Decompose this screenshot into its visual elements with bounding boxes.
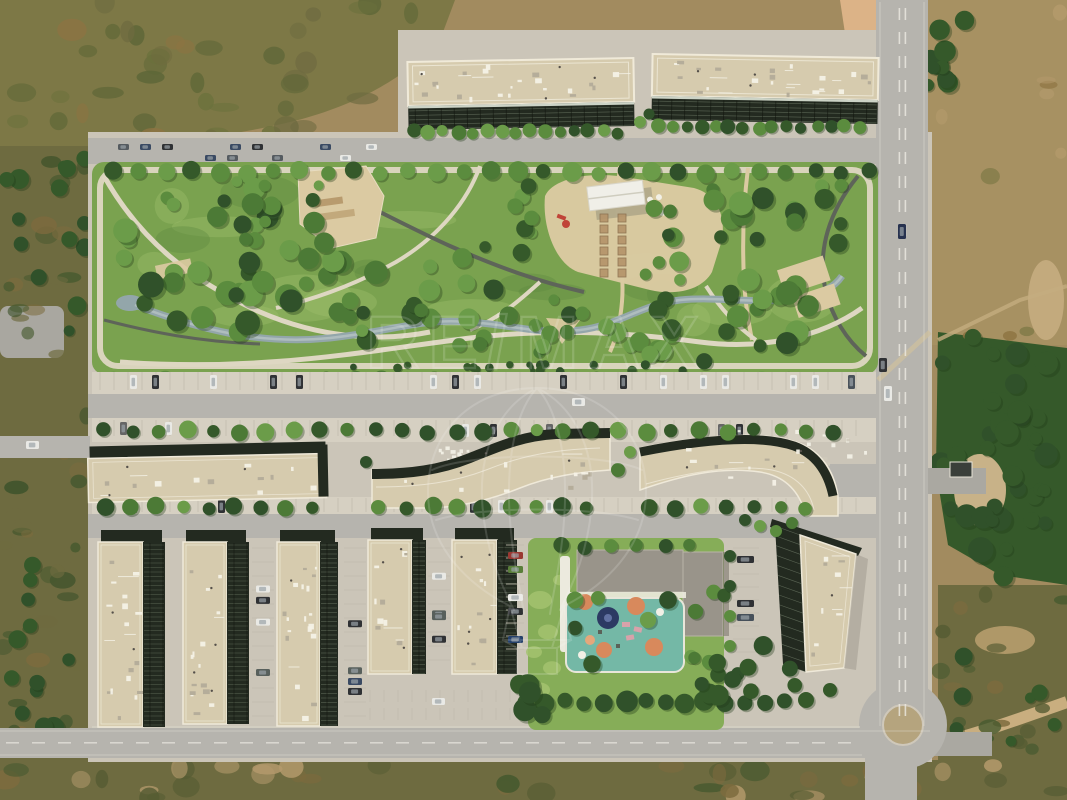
roof-unit [851, 72, 856, 77]
scrub-blob [987, 681, 1003, 694]
tree [1007, 401, 1030, 424]
roof-unit [201, 683, 207, 687]
avenue-center-dash [905, 632, 907, 644]
tree [187, 261, 209, 283]
tree [191, 306, 214, 329]
roof-vent [193, 671, 195, 673]
tree [809, 163, 823, 177]
roof-vent [800, 450, 802, 452]
tree [667, 121, 679, 133]
picnic-table [622, 622, 630, 627]
roof-unit [715, 68, 721, 71]
roof-unit [835, 572, 841, 576]
scrub-blob [790, 791, 814, 800]
car-glass [435, 614, 442, 618]
scrub-blob [50, 112, 68, 130]
car-glass [259, 598, 266, 602]
tree [1038, 484, 1050, 496]
tree [182, 161, 200, 179]
roof-vent [489, 618, 491, 620]
tree [757, 695, 773, 711]
tree [371, 500, 385, 514]
scrub-blob [195, 40, 223, 55]
roof-unit [793, 465, 797, 469]
roof-unit [457, 625, 459, 630]
tree [737, 268, 760, 291]
tree [555, 127, 566, 138]
sand-patch-right-2 [1028, 260, 1064, 340]
roof-unit [206, 588, 210, 591]
car-glass [259, 587, 266, 591]
roof-unit [218, 575, 222, 578]
pergola-module [618, 269, 626, 277]
scrub-blob [120, 21, 134, 43]
tree [231, 425, 248, 442]
tree [513, 244, 531, 262]
roof-line [832, 555, 850, 556]
avenue-center-dash [899, 392, 901, 404]
roof-vent [773, 465, 775, 467]
tree [314, 232, 334, 252]
aerial-photo: RE/MAX [0, 0, 1067, 800]
scrub-blob [987, 643, 1007, 652]
tree [984, 392, 1002, 410]
tree [207, 425, 219, 437]
roof-unit [728, 476, 733, 478]
tree [256, 423, 274, 441]
car [432, 636, 446, 643]
tree [993, 566, 1013, 586]
roof-unit [498, 94, 503, 97]
roof-unit [823, 563, 827, 566]
car-glass [435, 574, 442, 578]
pergola-module [600, 269, 608, 277]
terrace-table [738, 430, 741, 432]
tree [638, 693, 653, 708]
tree [1034, 443, 1057, 466]
tree [113, 218, 137, 242]
roof-unit [581, 472, 588, 474]
tree [96, 422, 110, 436]
tree [1030, 433, 1042, 445]
roof-unit [568, 88, 573, 93]
tree [311, 421, 327, 437]
tree [720, 424, 736, 440]
roof-unit [126, 676, 130, 681]
roof-unit [752, 78, 758, 83]
roof-vent [468, 631, 470, 633]
roof-unit [480, 579, 483, 582]
tree [704, 190, 725, 211]
roof-line [289, 666, 300, 667]
block-roof [368, 540, 412, 674]
roof-unit [765, 459, 770, 461]
car-glass [122, 425, 126, 433]
roof-unit [772, 480, 776, 486]
tree [235, 310, 260, 335]
tree [536, 164, 550, 178]
tree [1000, 542, 1013, 555]
play-circle [627, 597, 645, 615]
bottom-road-dash [422, 742, 435, 744]
scrub-blob [981, 168, 1000, 184]
tree [1003, 466, 1023, 486]
tree [97, 498, 115, 516]
tree [342, 292, 359, 309]
bottom-road-dash [708, 742, 721, 744]
tree [748, 500, 761, 513]
avenue-center-dash [899, 152, 901, 164]
scrub-blob [76, 103, 88, 123]
tree [638, 424, 656, 442]
roof-line [562, 454, 582, 455]
roof-unit [291, 467, 294, 471]
tree [232, 176, 243, 187]
avenue-center-dash [905, 248, 907, 260]
tree [521, 178, 537, 194]
scrub-blob [720, 784, 739, 798]
roof-unit [868, 81, 871, 84]
roof-unit [110, 561, 115, 564]
tree [290, 161, 308, 179]
avenue-center-dash [905, 560, 907, 572]
tree [580, 123, 594, 137]
bottom-road-dash [500, 742, 513, 744]
roof-unit [481, 638, 487, 643]
roof-unit [821, 608, 823, 614]
tree [724, 640, 736, 652]
car [790, 375, 797, 389]
umbrella [578, 651, 586, 659]
tree [640, 269, 652, 281]
avenue-center-dash [905, 512, 907, 524]
tree [29, 675, 45, 691]
car [348, 620, 362, 627]
roof-vent [400, 548, 402, 550]
car [737, 556, 754, 563]
car [340, 155, 351, 161]
avenue-center-dash [899, 584, 901, 596]
block-facade [227, 542, 249, 724]
roof-unit [375, 626, 380, 630]
car [432, 613, 446, 620]
pergola-module [600, 225, 608, 233]
tree [829, 234, 848, 253]
roof-unit [208, 479, 215, 484]
car-glass [351, 669, 358, 673]
tree [314, 180, 324, 190]
roof-unit [422, 92, 428, 96]
tree [1038, 516, 1052, 530]
roof-unit [436, 85, 438, 88]
scrub-blob [1037, 76, 1056, 83]
play-structure [616, 644, 620, 648]
tree [604, 539, 618, 553]
roof-unit [194, 478, 200, 483]
lawn-mound [528, 591, 552, 609]
roof-vent [214, 644, 216, 646]
roof-unit [295, 685, 300, 690]
tree [780, 120, 792, 132]
tree [659, 539, 673, 553]
tree [751, 163, 767, 179]
tree [507, 198, 522, 213]
roof-unit [315, 567, 317, 570]
tree [653, 256, 666, 269]
roof-unit [457, 95, 462, 100]
roof-unit [477, 612, 482, 615]
playground-slide [562, 220, 570, 228]
scrub-blob [176, 40, 194, 54]
scrub-blob [1039, 88, 1054, 99]
bottom-road-dash [474, 742, 487, 744]
avenue-center-dash [905, 80, 907, 92]
tree [531, 424, 543, 436]
tree [954, 688, 971, 705]
pergola-module [618, 236, 626, 244]
bottom-road-dash [734, 742, 747, 744]
tree [786, 213, 802, 229]
roof-unit [283, 612, 287, 617]
bottom-road-dash [84, 742, 97, 744]
tree [754, 520, 766, 532]
tree [62, 653, 75, 666]
car-glass [29, 443, 36, 448]
roof-unit [677, 61, 684, 65]
roof-unit [380, 600, 385, 605]
tree [279, 240, 299, 260]
roof-unit [190, 570, 194, 573]
tree [670, 164, 687, 181]
tree [612, 128, 624, 140]
tree [719, 500, 734, 515]
tree [583, 655, 601, 673]
roof-line [786, 87, 795, 88]
roof-unit [678, 76, 683, 79]
block-top-facade [455, 528, 514, 541]
tree [306, 193, 320, 207]
roof-unit [122, 595, 127, 599]
roof-unit [374, 599, 376, 605]
roof-unit [133, 484, 137, 488]
roof-unit [190, 691, 196, 695]
scrub-blob [1053, 5, 1067, 21]
tree [825, 425, 841, 441]
tree [407, 123, 421, 137]
tree [61, 231, 77, 247]
scrub-blob [3, 763, 29, 777]
tree [64, 325, 75, 336]
bottom-road-dash [32, 742, 45, 744]
car [140, 144, 151, 150]
tree [691, 421, 709, 439]
car [270, 375, 277, 389]
tree [929, 19, 950, 40]
terrace-table [864, 451, 867, 455]
avenue-center-dash [905, 536, 907, 548]
apartment-block-south-4 [368, 528, 426, 674]
tree [720, 119, 735, 134]
block-roof [183, 542, 227, 724]
roof-line [832, 80, 841, 81]
avenue-center-dash [905, 608, 907, 620]
roof-line [118, 576, 139, 577]
tree [21, 593, 35, 607]
tree [68, 296, 87, 315]
roof-unit [134, 661, 139, 665]
bottom-road-dash [214, 742, 227, 744]
scrub-blob [841, 774, 858, 786]
tree [664, 424, 677, 437]
school-roof-west [577, 550, 683, 592]
tree [130, 163, 146, 179]
roof-line [729, 462, 743, 463]
scrub-blob [70, 475, 87, 489]
bottom-road-dash [682, 742, 695, 744]
car-glass [154, 378, 158, 386]
roof-unit [770, 75, 776, 80]
car [348, 688, 362, 695]
terrace-table [457, 452, 461, 456]
roof-unit [432, 82, 438, 85]
car [162, 144, 173, 150]
tree [598, 124, 610, 136]
roof-unit [404, 480, 407, 483]
roof-unit [111, 582, 116, 584]
scrub-blob [1003, 331, 1017, 341]
apartment-block-south-5 [452, 528, 517, 674]
scrub-blob [713, 764, 727, 785]
tree [303, 212, 325, 234]
tree [538, 124, 552, 138]
tree [252, 271, 274, 293]
avenue-center-dash [899, 656, 901, 668]
tree [534, 706, 551, 723]
car [879, 358, 887, 372]
scrub-blob [12, 521, 35, 533]
tree [345, 161, 362, 178]
scrub-blob [50, 564, 65, 578]
car-glass [207, 156, 213, 160]
car [737, 600, 754, 607]
tree [795, 123, 806, 134]
tree [286, 422, 303, 439]
building-west-end [317, 444, 328, 496]
bottom-road-dash [136, 742, 149, 744]
pergola-module [600, 258, 608, 266]
scrub-blob [151, 46, 172, 65]
roof-unit [697, 91, 703, 94]
tree [523, 123, 537, 137]
tree [834, 166, 848, 180]
car-glass [132, 378, 136, 386]
avenue-center-dash [899, 104, 901, 116]
roof-vent [382, 561, 384, 563]
avenue-center-dash [899, 704, 901, 716]
tree [479, 241, 491, 253]
bottom-road-dash [188, 742, 201, 744]
block-top-facade [186, 530, 246, 543]
tree [419, 280, 441, 302]
pergola-module [618, 225, 626, 233]
avenue-center-dash [905, 704, 907, 716]
scrub-blob [26, 653, 50, 668]
tree [321, 166, 336, 181]
car-glass [342, 156, 348, 160]
roof-unit [592, 85, 595, 90]
tree [765, 120, 778, 133]
tree [203, 502, 216, 515]
roof-unit [459, 488, 463, 492]
roof-unit [285, 636, 288, 641]
tree [452, 248, 472, 268]
roof-unit [293, 583, 298, 587]
roof-vent [133, 648, 135, 650]
car-glass [814, 378, 818, 386]
car [508, 552, 523, 559]
bottom-road-dash [6, 742, 19, 744]
roof-unit [574, 472, 578, 476]
roof-unit [469, 97, 472, 103]
tree [651, 118, 666, 133]
roof-unit [535, 78, 542, 83]
car-glass [212, 378, 216, 386]
tree [695, 677, 709, 691]
roof-unit [861, 74, 868, 79]
umbrella [656, 608, 664, 616]
bottom-road-dash [240, 742, 253, 744]
roof-vent [111, 611, 113, 613]
car-glass [511, 595, 519, 599]
roof-unit [302, 716, 309, 721]
avenue-center-dash [899, 536, 901, 548]
roof-unit [510, 86, 512, 89]
scrub-blob [1020, 724, 1036, 738]
roof-unit [311, 634, 316, 639]
tree [646, 200, 663, 217]
pergola-module [600, 214, 608, 222]
roof-unit [812, 90, 819, 94]
roof-vent [467, 642, 469, 644]
roof-unit [819, 76, 825, 81]
tree [662, 229, 675, 242]
scrub-blob [1025, 744, 1038, 755]
car [722, 375, 729, 389]
tree [591, 591, 605, 605]
tree [207, 207, 228, 228]
tree [724, 671, 741, 688]
bottom-road-dash [604, 742, 617, 744]
car-glass [368, 145, 374, 149]
car [152, 375, 159, 389]
car [227, 155, 238, 161]
avenue-center-dash [899, 320, 901, 332]
tree [815, 189, 835, 209]
car [546, 500, 553, 513]
tree [24, 557, 41, 574]
tree [242, 193, 264, 215]
block-top-facade [280, 530, 335, 543]
lawn-mound [543, 661, 561, 675]
car-glass [232, 145, 238, 149]
connector-road [826, 464, 928, 498]
roof-unit [270, 475, 273, 480]
roof-unit [469, 626, 472, 629]
roof-vent [568, 459, 570, 461]
tree [683, 539, 695, 551]
roof-unit [686, 448, 692, 451]
roof-unit [118, 716, 121, 720]
